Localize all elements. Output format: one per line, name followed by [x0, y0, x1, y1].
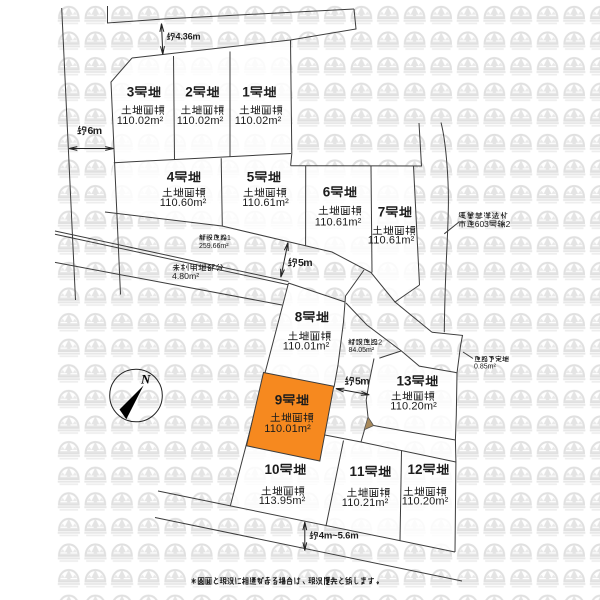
svg-text:8: 8 [295, 310, 303, 325]
svg-text:110.21m²: 110.21m² [342, 497, 389, 509]
svg-text:N: N [140, 372, 151, 387]
svg-text:110.20m²: 110.20m² [402, 496, 449, 508]
svg-text:2: 2 [185, 85, 193, 100]
svg-text:84.05m²: 84.05m² [349, 347, 375, 354]
svg-text:3: 3 [127, 85, 135, 100]
svg-text:110.02m²: 110.02m² [177, 115, 224, 127]
svg-text:110.01m²: 110.01m² [283, 341, 330, 353]
svg-text:259.66m²: 259.66m² [199, 243, 229, 250]
svg-text:13: 13 [397, 374, 412, 389]
svg-text:6: 6 [323, 185, 331, 200]
svg-text:110.02m²: 110.02m² [117, 115, 164, 127]
svg-text:110.20m²: 110.20m² [390, 401, 437, 413]
svg-text:10: 10 [265, 462, 280, 477]
svg-text:4.80m²: 4.80m² [172, 271, 199, 281]
svg-text:1: 1 [242, 85, 250, 100]
svg-text:2: 2 [506, 219, 511, 229]
svg-text:7: 7 [378, 205, 386, 220]
svg-text:113.95m²: 113.95m² [259, 495, 306, 507]
svg-text:5: 5 [247, 170, 255, 185]
svg-text:110.61m²: 110.61m² [242, 197, 289, 209]
svg-text:603: 603 [475, 219, 489, 229]
svg-text:110.02m²: 110.02m² [235, 115, 282, 127]
svg-text:110.61m²: 110.61m² [368, 235, 415, 247]
svg-text:9: 9 [275, 393, 283, 408]
svg-text:4.36m: 4.36m [176, 32, 201, 42]
svg-text:1: 1 [227, 235, 231, 242]
svg-text:110.01m²: 110.01m² [264, 423, 311, 435]
svg-text:0.85m²: 0.85m² [474, 363, 496, 370]
svg-text:5m: 5m [298, 257, 313, 269]
svg-text:4: 4 [167, 170, 175, 185]
svg-text:12: 12 [408, 462, 423, 477]
svg-text:110.60m²: 110.60m² [160, 197, 207, 209]
svg-text:4m~5.6m: 4m~5.6m [319, 531, 359, 542]
svg-text:5m: 5m [355, 376, 370, 388]
svg-text:110.61m²: 110.61m² [315, 217, 362, 229]
svg-text:2: 2 [378, 338, 382, 347]
svg-text:6m: 6m [88, 125, 103, 137]
svg-text:11: 11 [350, 464, 365, 479]
